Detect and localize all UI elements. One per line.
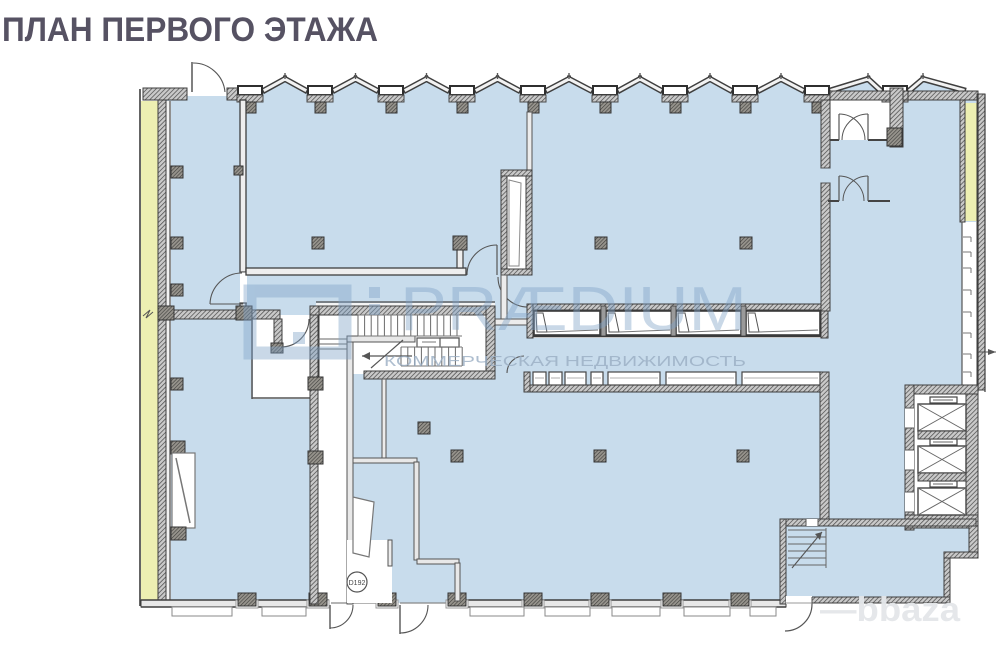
svg-text:D192: D192 xyxy=(349,580,366,587)
svg-text:—bbaza: —bbaza xyxy=(820,591,961,629)
svg-text:ПЛАН ПЕРВОГО ЭТАЖА: ПЛАН ПЕРВОГО ЭТАЖА xyxy=(2,11,378,49)
svg-text:PRÆDIUM: PRÆDIUM xyxy=(400,275,747,344)
svg-text:КОММЕРЧЕСКАЯ НЕДВИЖИМОСТЬ: КОММЕРЧЕСКАЯ НЕДВИЖИМОСТЬ xyxy=(384,353,746,370)
